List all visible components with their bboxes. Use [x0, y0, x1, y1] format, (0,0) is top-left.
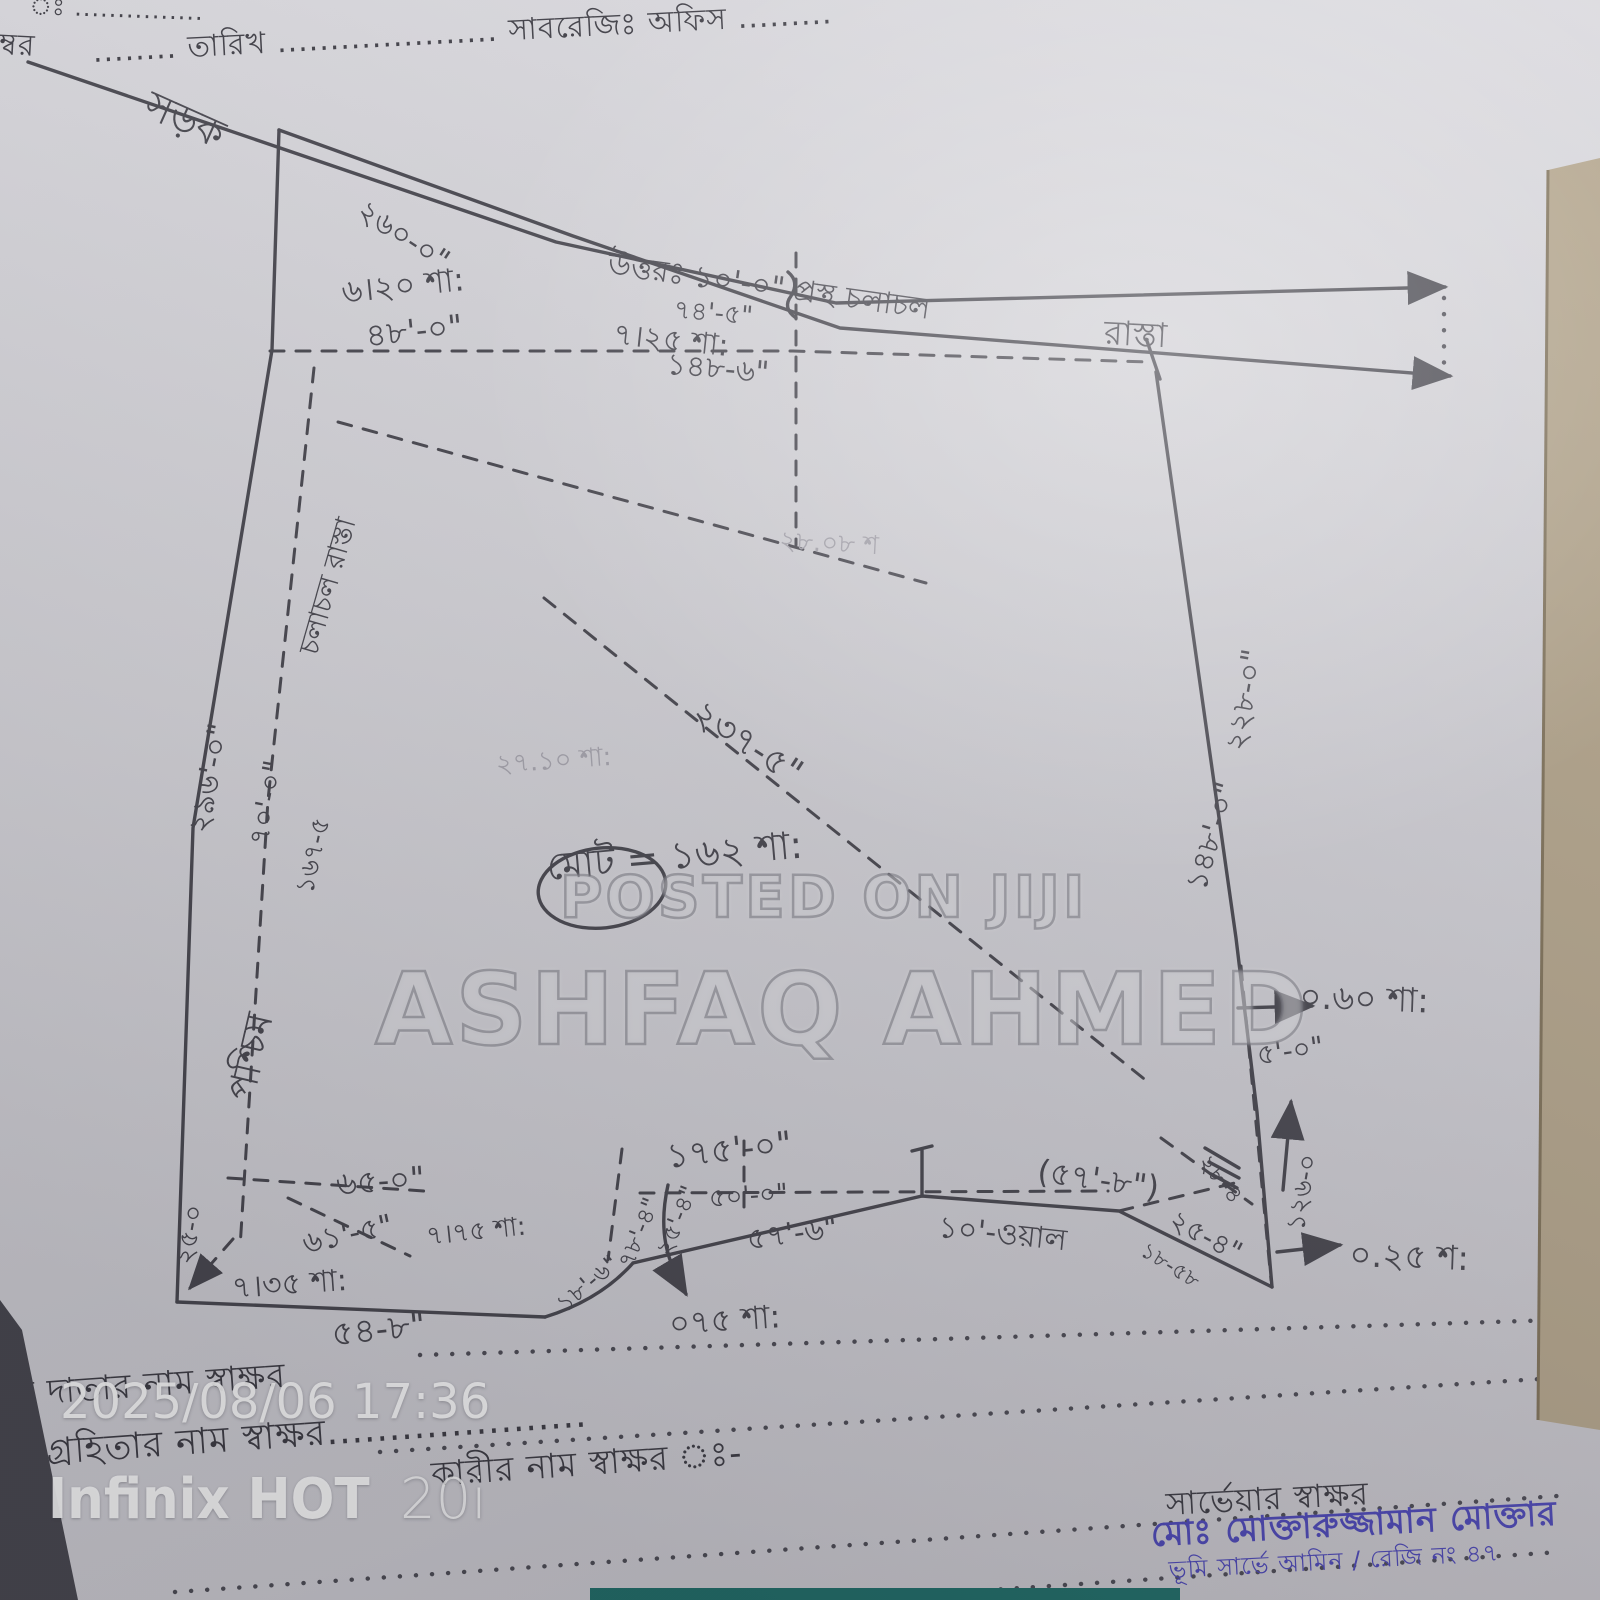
sw-area-label: ৭।৩৫ শা: [231, 1266, 348, 1304]
south-edge-measurement: ৫৪-৮" [330, 1308, 427, 1352]
faint-area-note: ২৭.১০ শা: [495, 744, 612, 778]
dotted-leader-1 [420, 1320, 1557, 1355]
south-measurement: ৫০'-০" [708, 1180, 789, 1211]
arrow-025 [1277, 1245, 1340, 1252]
sw-measurement: ৬৫-০" [335, 1162, 426, 1200]
boundary-post-mark [912, 1146, 932, 1196]
photographed-survey-sketch: ঃ ............... ম্বর ........ তারিখ ..… [0, 0, 1600, 1600]
offset-label-060: ০.৬০ শা: [1299, 980, 1429, 1018]
jiji-watermark-line2: ASHFAQ AHMED [375, 960, 1310, 1060]
device-watermark-brand: Infinix HOT [48, 1472, 370, 1528]
boundary-west-top [272, 130, 279, 350]
south-area-label: ০৭৫ শা: [668, 1300, 782, 1340]
form-number-word: ম্বর [0, 30, 36, 62]
photo-bottom-sliver [590, 1588, 1180, 1600]
jiji-watermark-line1: POSTED ON JIJI [560, 868, 1087, 926]
camera-timestamp: 2025/08/06 17:36 [60, 1378, 490, 1426]
road-word-label: রাস্তা [1103, 316, 1168, 353]
device-watermark-model: 20i [400, 1472, 487, 1528]
measurement-label: ৪৮'-০" [364, 310, 464, 352]
faint-area-note: ২৮.০৮ শ [779, 528, 880, 559]
offset-label-025: ০.২৫ শ: [1349, 1238, 1470, 1276]
form-top-caption: ঃ ............... [29, 0, 204, 24]
measurement-label: ১৪৮-৬" [665, 350, 770, 389]
